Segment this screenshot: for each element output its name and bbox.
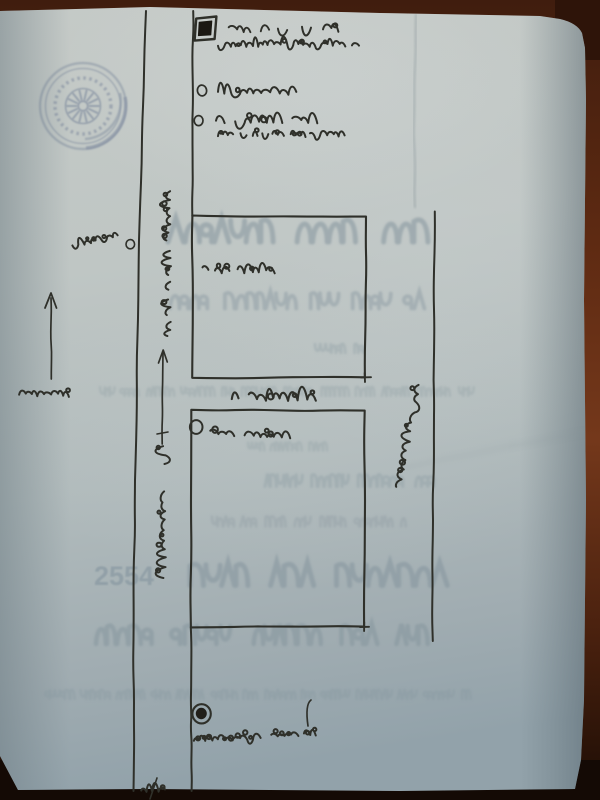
svg-text:2554: 2554 [94, 561, 154, 591]
